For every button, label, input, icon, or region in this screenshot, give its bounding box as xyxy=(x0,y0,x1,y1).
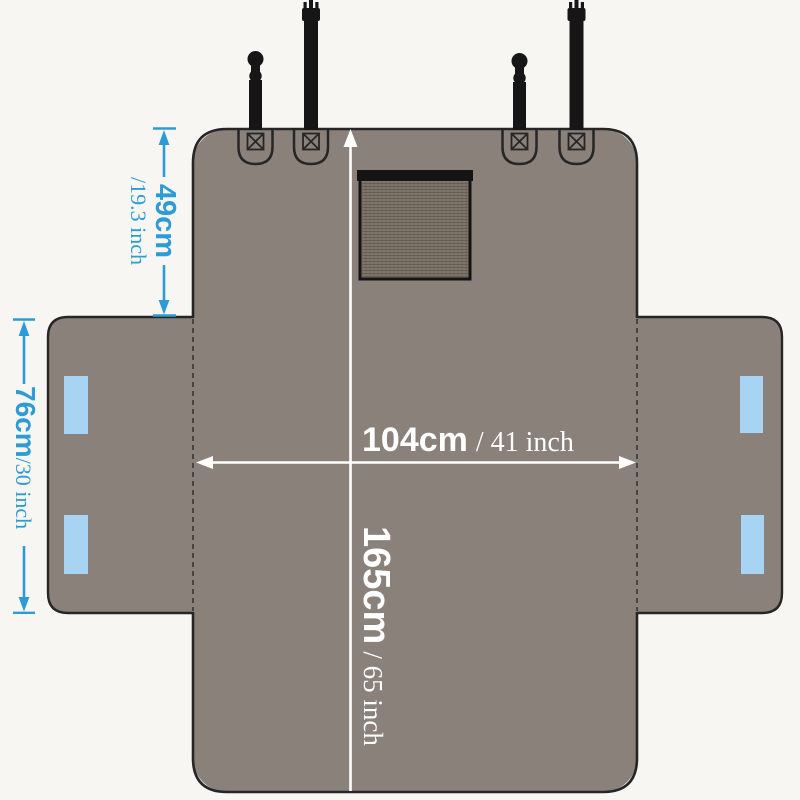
velcro-strip-icon xyxy=(740,376,763,433)
prong-buckle-strap-icon xyxy=(302,0,320,130)
mesh-top-flap xyxy=(357,170,473,181)
velcro-strip-icon xyxy=(64,376,88,434)
clip-strap-icon xyxy=(248,51,264,130)
velcro-strip-icon xyxy=(64,515,88,574)
diagram-canvas xyxy=(0,0,800,800)
mesh-window xyxy=(357,170,473,279)
clip-strap-icon xyxy=(512,53,528,130)
prong-buckle-strap-icon xyxy=(568,0,586,130)
mesh-texture xyxy=(362,182,468,277)
seat-cover-dimension-diagram: 104cm / 41 inch 165cm / 65 inch 49cm /19… xyxy=(0,0,800,800)
velcro-strip-icon xyxy=(741,515,764,574)
